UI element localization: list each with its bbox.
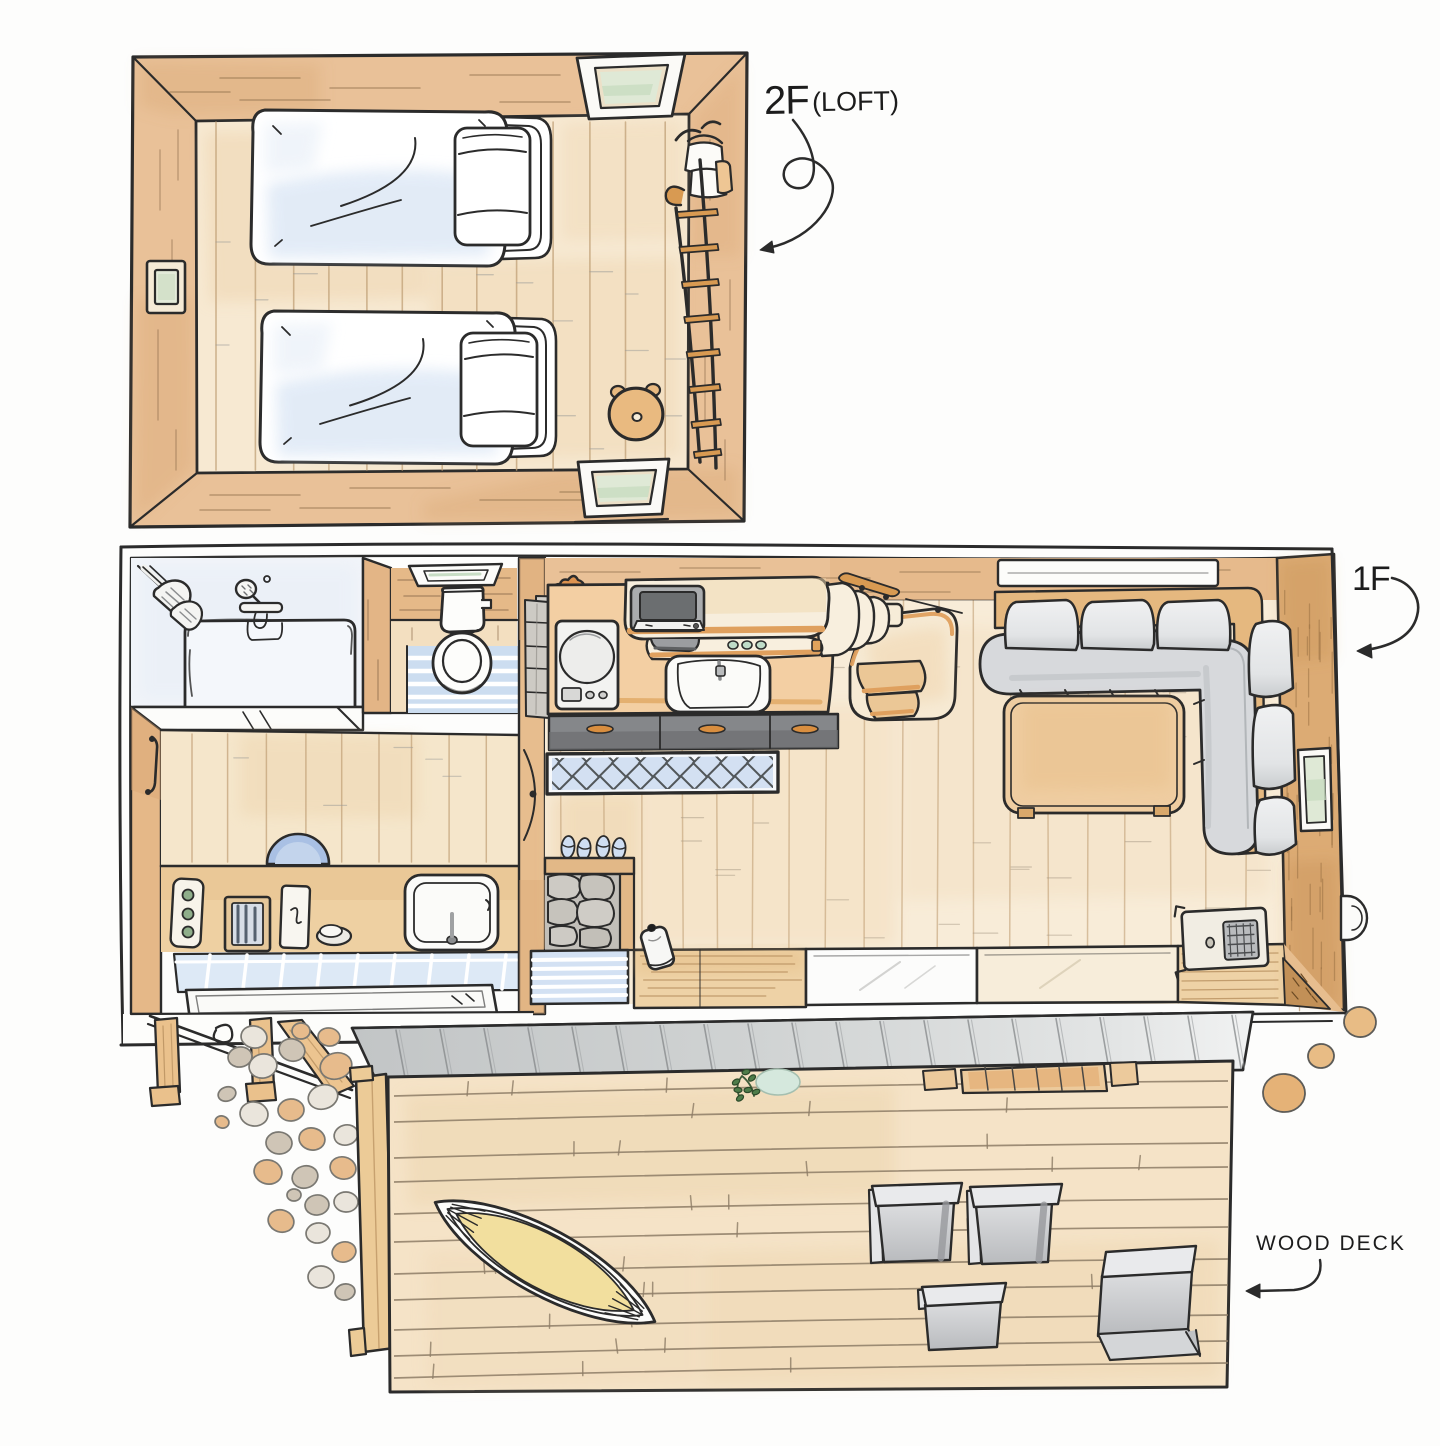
svg-text:(LOFT): (LOFT)	[812, 86, 900, 118]
svg-text:1F: 1F	[1352, 560, 1390, 598]
svg-text:WOOD DECK: WOOD DECK	[1256, 1232, 1406, 1255]
svg-text:2F: 2F	[764, 78, 809, 123]
